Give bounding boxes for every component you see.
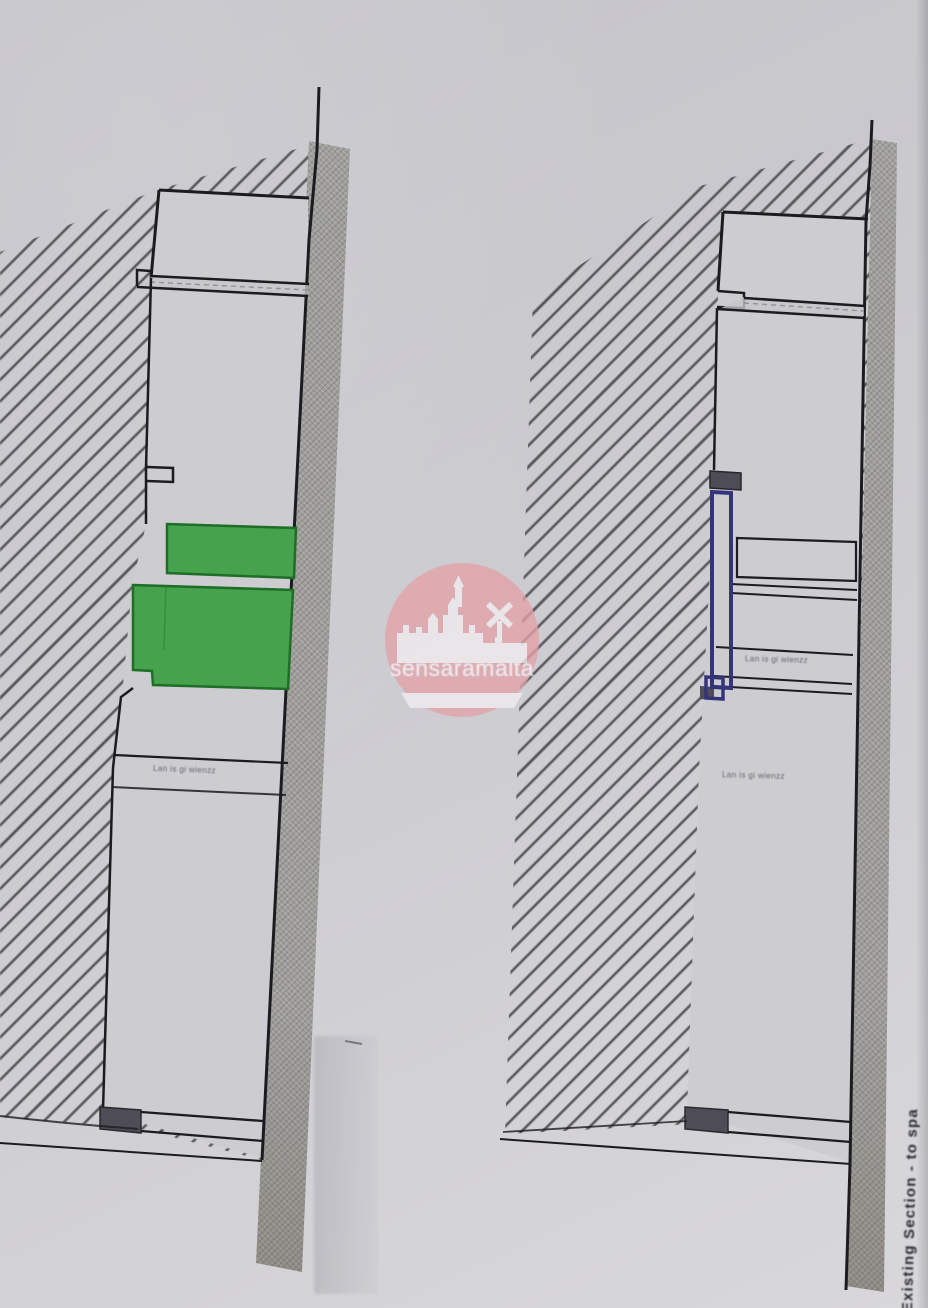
green-infill-lower — [133, 585, 293, 689]
green-infill-upper — [167, 524, 296, 578]
green-highlight-infill — [133, 524, 296, 689]
watermark-badge: sensaramalta — [385, 563, 539, 717]
annotation-right-floor: Lan is gi wienzz — [722, 770, 785, 781]
erased-patch — [314, 1036, 378, 1294]
right-wall-face-line — [846, 120, 872, 1290]
right-mid-step — [710, 471, 741, 490]
blue-frame-vertical — [712, 492, 731, 688]
photographed-drawing-sheet: Lan is gi wienzz Lan is gi wienzz Lan is… — [0, 0, 928, 1308]
watermark-text: sensaramalta — [375, 655, 549, 682]
blue-frame — [706, 492, 731, 699]
castle-windmill-icon — [385, 563, 539, 717]
annotation-right-shelf: Lan is gi wienzz — [745, 654, 808, 665]
left-mid-step — [147, 467, 173, 482]
right-floor-step — [685, 1107, 728, 1133]
right-shelf-outline — [737, 538, 856, 581]
